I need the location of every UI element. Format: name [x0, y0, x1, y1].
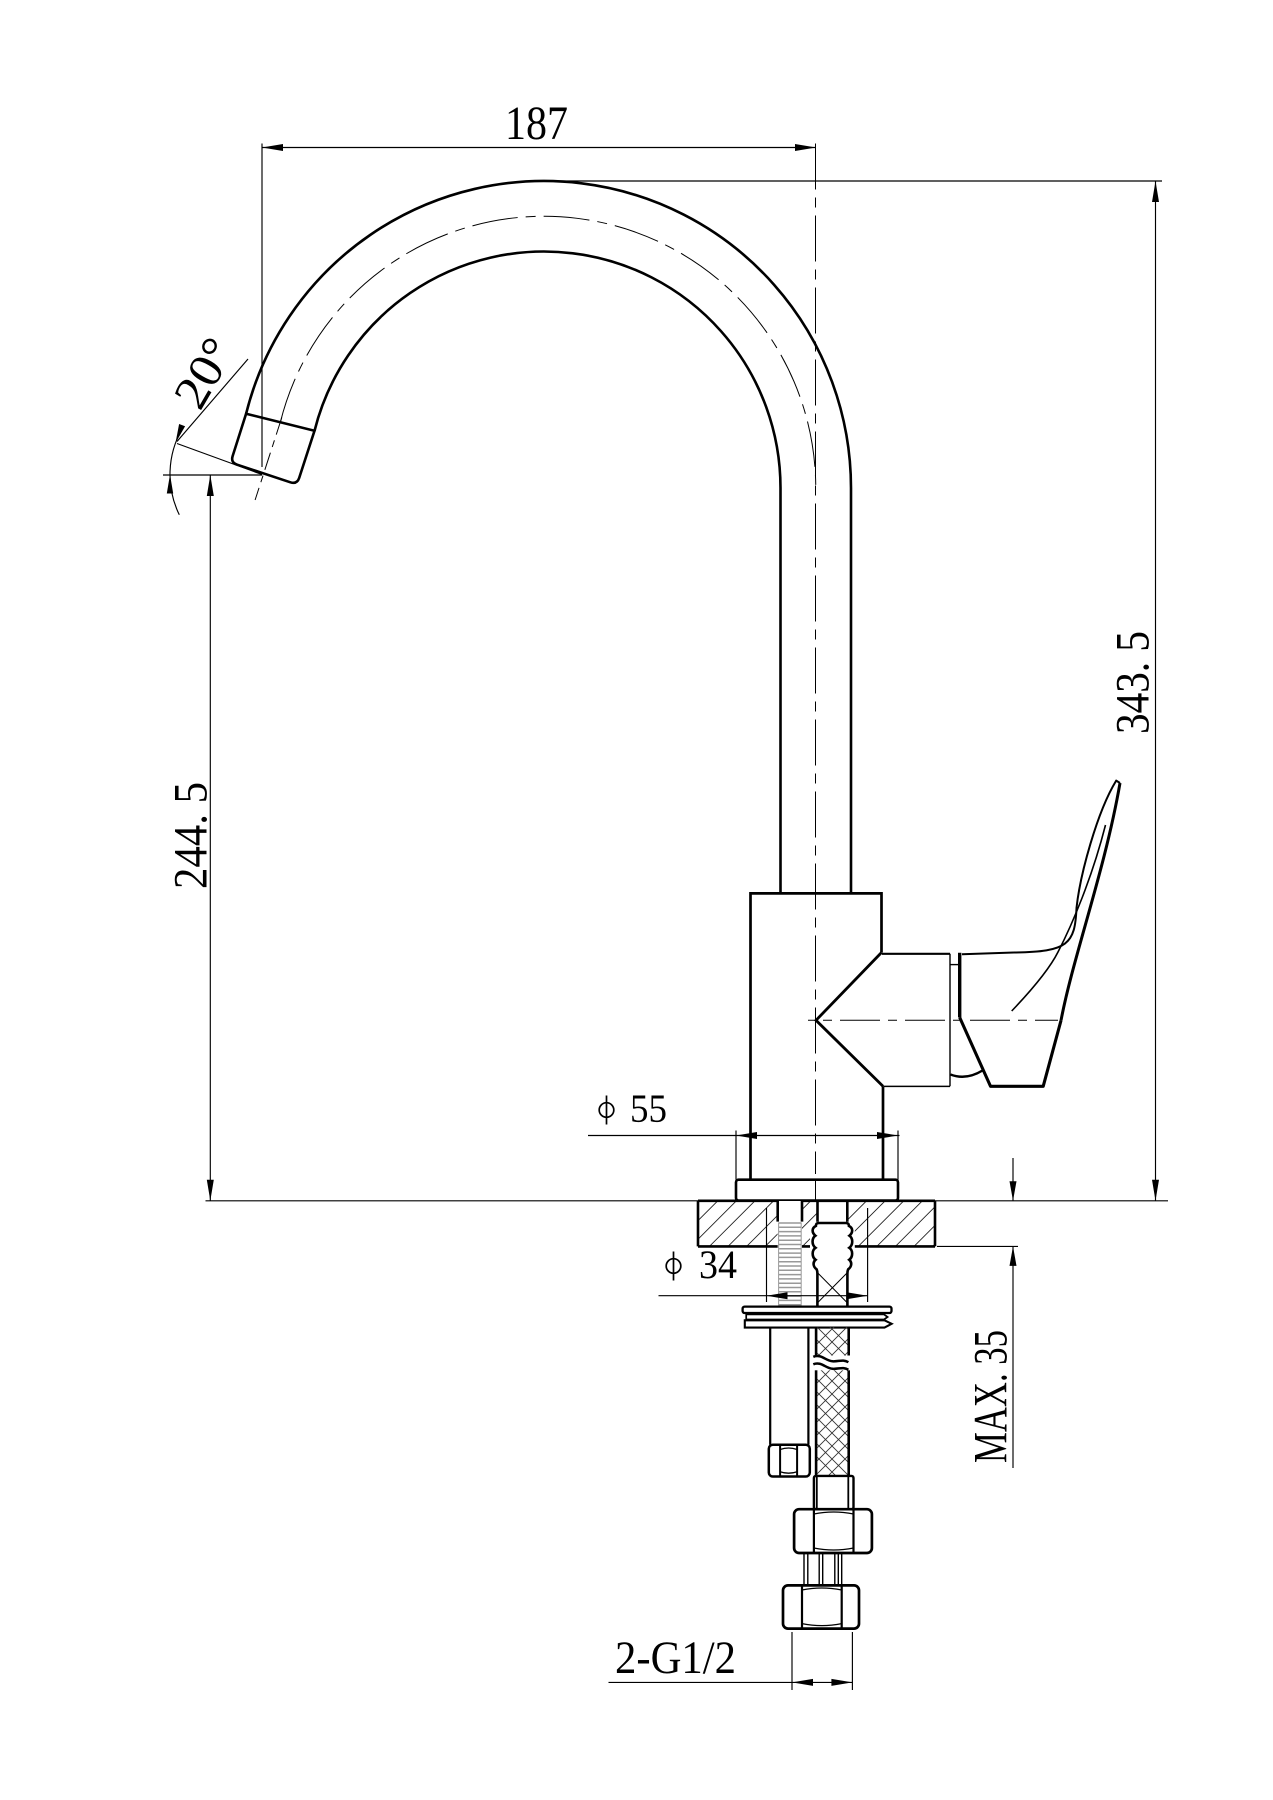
svg-text:187: 187: [505, 97, 568, 150]
svg-text:343. 5: 343. 5: [1107, 631, 1160, 734]
svg-text:244. 5: 244. 5: [165, 782, 218, 889]
svg-text:55: 55: [630, 1086, 667, 1131]
svg-text:MAX. 35: MAX. 35: [965, 1330, 1018, 1463]
svg-text:34: 34: [699, 1242, 737, 1287]
svg-text:2-G1/2: 2-G1/2: [615, 1632, 736, 1684]
